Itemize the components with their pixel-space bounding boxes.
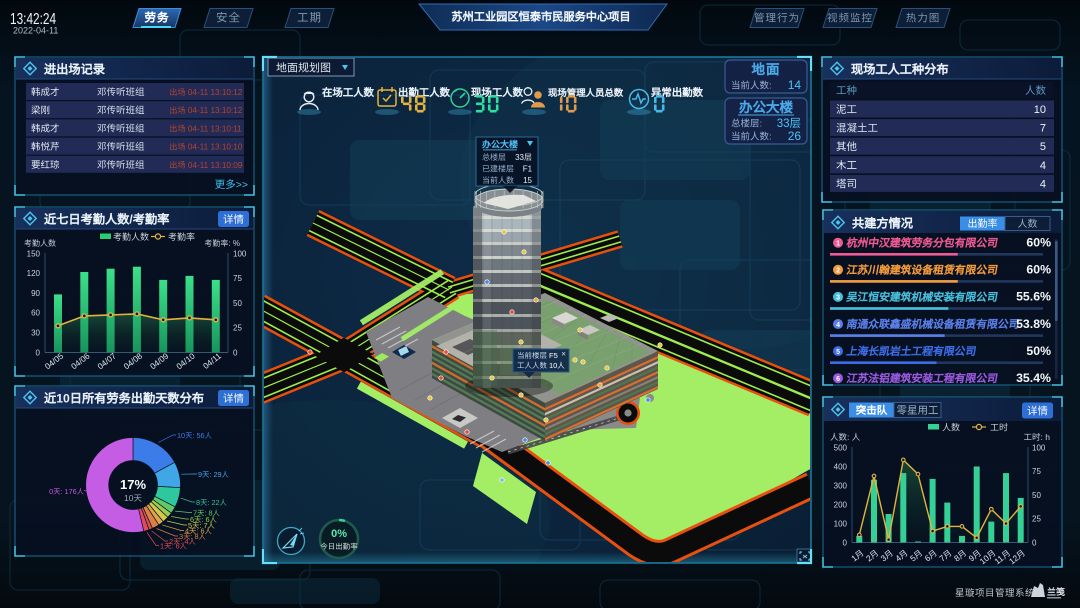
svg-text:7: 7 (1040, 123, 1046, 135)
svg-text:50%: 50% (1026, 344, 1051, 358)
svg-text::: : (769, 132, 772, 143)
svg-text:0: 0 (1032, 538, 1037, 547)
svg-text:0%: 0% (331, 528, 347, 540)
svg-text:0: 0 (36, 348, 41, 357)
svg-text:0: 0 (843, 538, 848, 547)
svg-text:200: 200 (834, 500, 848, 509)
svg-text:4: 4 (185, 527, 189, 536)
svg-text:60%: 60% (1026, 263, 1051, 277)
svg-text:55.6%: 55.6% (1016, 290, 1051, 304)
svg-text:: 29: : 29 (209, 470, 221, 479)
svg-text:1: 1 (836, 241, 840, 248)
svg-text:3: 3 (836, 295, 840, 302)
svg-text:×: × (561, 350, 566, 359)
svg-text:9: 9 (198, 470, 202, 479)
svg-text:0: 0 (233, 348, 238, 357)
svg-text:04-11 13:10:10: 04-11 13:10:10 (186, 143, 243, 152)
svg-text:26: 26 (788, 129, 802, 143)
svg-text:: 176: : 176 (61, 487, 77, 496)
svg-text:10: 10 (177, 431, 185, 440)
svg-text:04-11 13:10:12: 04-11 13:10:12 (186, 106, 243, 115)
svg-text::: : (847, 432, 852, 442)
svg-text:25: 25 (233, 324, 242, 333)
svg-text::: : (769, 81, 772, 92)
svg-text:4: 4 (836, 322, 840, 329)
svg-text:F1: F1 (523, 165, 533, 174)
svg-text:: 4: : 4 (180, 537, 188, 546)
svg-text:100: 100 (1032, 443, 1046, 452)
svg-text:10: 10 (124, 493, 134, 503)
svg-text:100: 100 (834, 519, 848, 528)
svg-text:: %: : % (228, 239, 240, 248)
svg-text:: 56: : 56 (192, 431, 204, 440)
svg-text:: h: : h (1041, 432, 1051, 442)
svg-text:5: 5 (1040, 141, 1046, 153)
svg-text:33: 33 (515, 153, 524, 162)
svg-text:: 22: : 22 (207, 498, 219, 507)
svg-text:: 6: : 6 (171, 542, 179, 551)
svg-text:500: 500 (834, 443, 848, 452)
svg-text:17%: 17% (120, 477, 146, 492)
svg-text:10: 10 (56, 392, 70, 406)
svg-text:15: 15 (523, 176, 532, 185)
svg-text:14: 14 (788, 78, 802, 92)
svg-text:8: 8 (196, 498, 200, 507)
svg-text:F5: F5 (549, 351, 558, 360)
svg-text:60: 60 (31, 309, 40, 318)
svg-text:4: 4 (1040, 160, 1046, 172)
svg-text:90: 90 (31, 289, 40, 298)
svg-text:: 8: : 8 (190, 532, 198, 541)
svg-text:1: 1 (160, 542, 164, 551)
svg-text:30: 30 (31, 329, 40, 338)
svg-text:50: 50 (1032, 491, 1041, 500)
svg-text:300: 300 (834, 481, 848, 490)
svg-text:5: 5 (836, 349, 840, 356)
svg-text:400: 400 (834, 462, 848, 471)
svg-text:04-11 13:10:11: 04-11 13:10:11 (186, 124, 243, 133)
svg-text:75: 75 (233, 274, 242, 283)
svg-text:2022-04-11: 2022-04-11 (13, 26, 58, 36)
svg-text:10: 10 (549, 361, 557, 370)
svg-text:04-11 13:10:12: 04-11 13:10:12 (186, 88, 243, 97)
svg-text::: : (760, 119, 763, 130)
svg-text:150: 150 (27, 249, 41, 258)
svg-text:25: 25 (1032, 515, 1041, 524)
svg-text:04-11 13:10:09: 04-11 13:10:09 (186, 161, 243, 170)
svg-text:2: 2 (836, 268, 840, 275)
svg-text:10: 10 (1034, 104, 1046, 116)
svg-text:50: 50 (233, 299, 242, 308)
svg-text:100: 100 (233, 249, 247, 258)
svg-text:0: 0 (49, 487, 53, 496)
svg-text:>>: >> (236, 179, 248, 191)
svg-text:120: 120 (27, 269, 41, 278)
svg-text:35.4%: 35.4% (1016, 371, 1051, 385)
svg-text:6: 6 (836, 376, 840, 383)
svg-text:53.8%: 53.8% (1016, 317, 1051, 331)
svg-text:75: 75 (1032, 467, 1041, 476)
svg-text:4: 4 (1040, 178, 1046, 190)
svg-text:60%: 60% (1026, 236, 1051, 250)
